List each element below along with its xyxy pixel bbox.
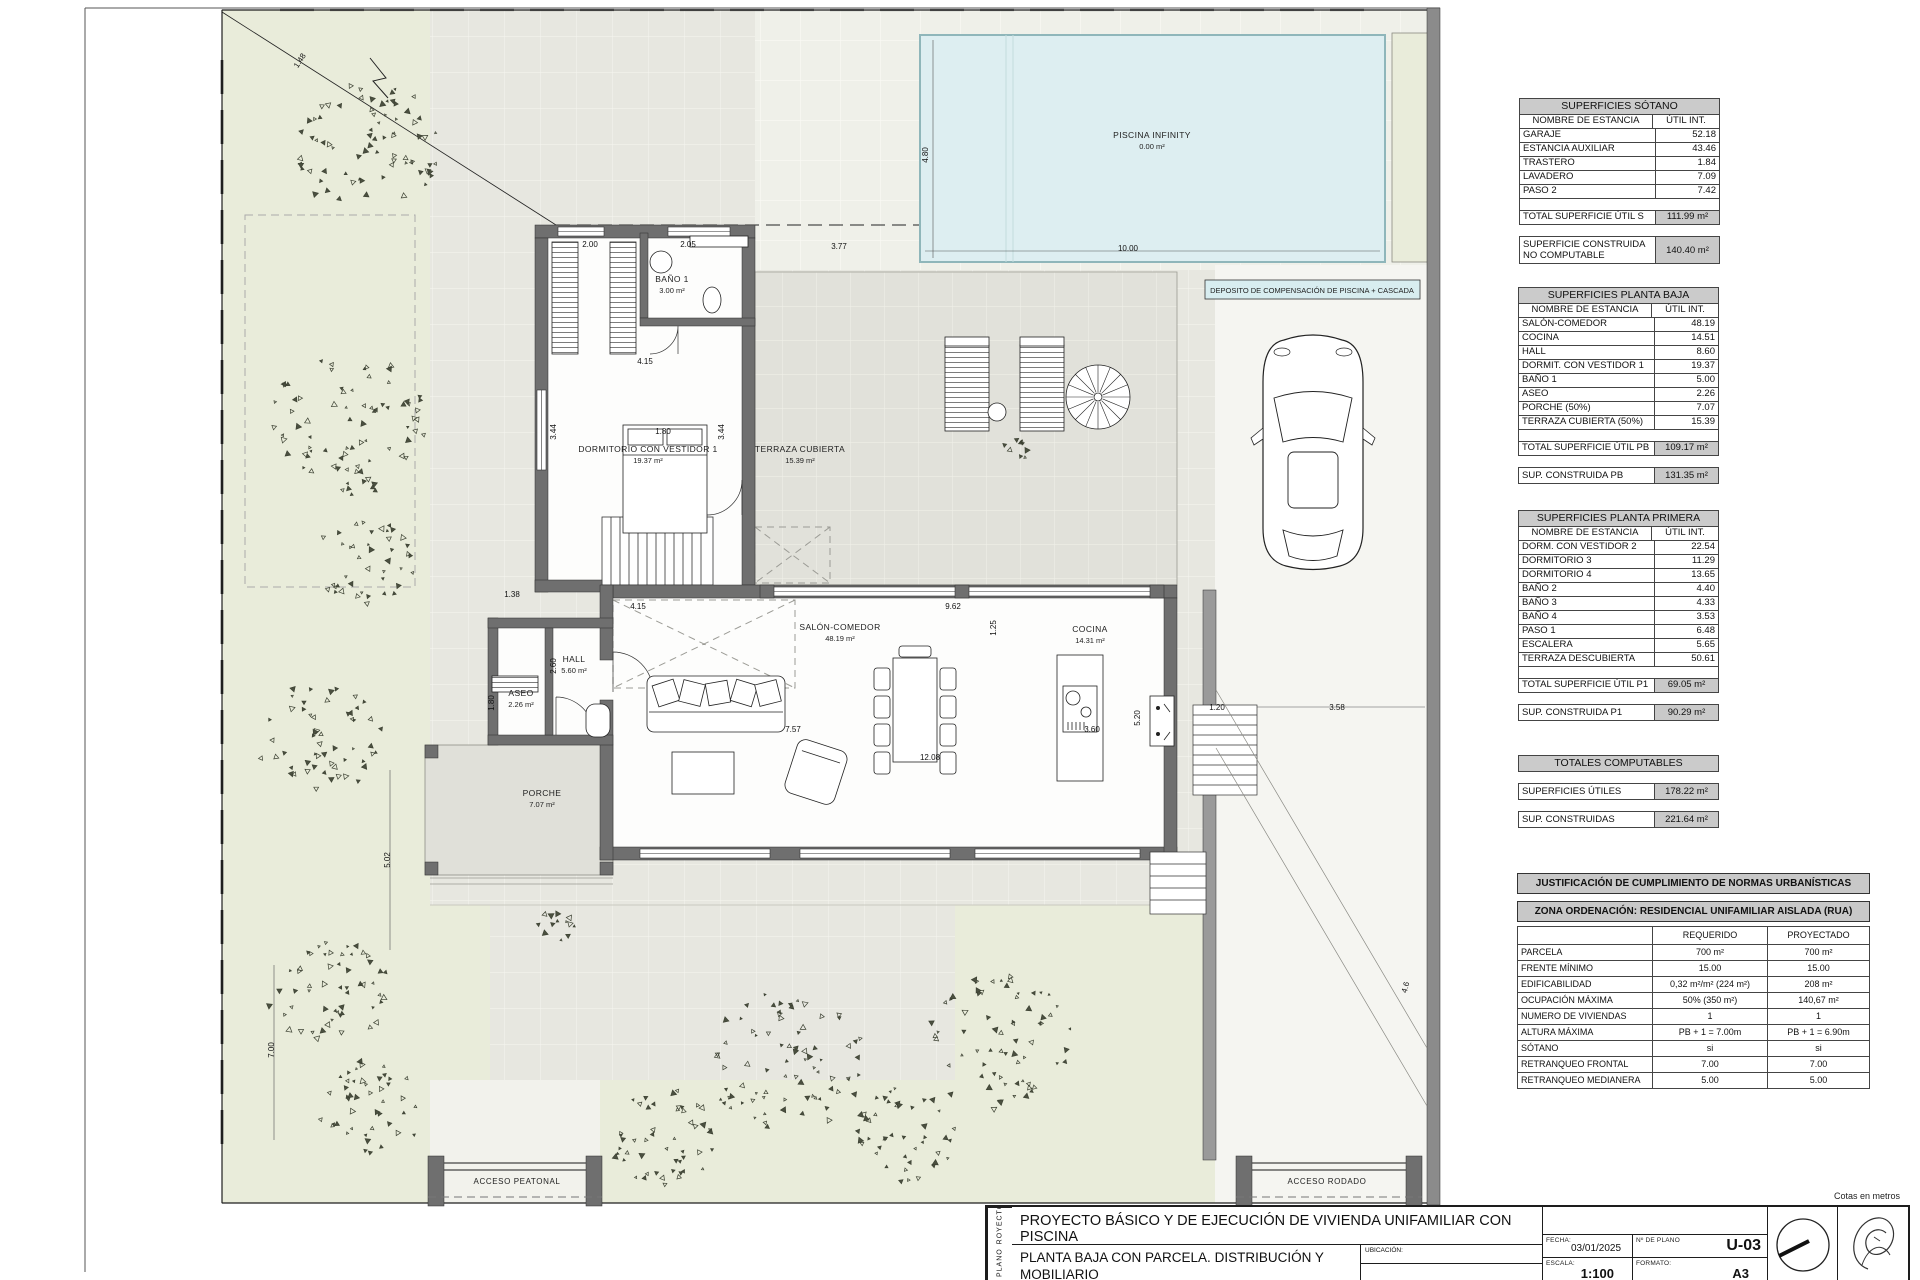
formato-label: FORMATO: — [1636, 1260, 1671, 1267]
svg-text:0.00 m²: 0.00 m² — [1139, 142, 1165, 151]
svg-text:ASEO: ASEO — [508, 688, 533, 698]
fecha-cell: FECHA: 03/01/2025 — [1542, 1235, 1632, 1258]
dimension-label: 3.58 — [1329, 703, 1345, 712]
plan-number-value: U-03 — [1726, 1237, 1761, 1255]
svg-text:14.31 m²: 14.31 m² — [1075, 636, 1105, 645]
signature-icon — [1838, 1207, 1908, 1280]
pool-tank-label: DEPOSITO DE COMPENSACIÓN DE PISCINA + CA… — [1210, 286, 1414, 295]
svg-text:COCINA: COCINA — [1072, 624, 1107, 634]
spiral-staircase — [1066, 365, 1130, 429]
svg-text:7.07 m²: 7.07 m² — [529, 800, 555, 809]
ubicacion-label: UBICACIÓN: — [1365, 1247, 1403, 1254]
formato-value: A3 — [1732, 1266, 1749, 1280]
empty-cell — [1542, 1207, 1767, 1235]
dimension-label: 2.05 — [680, 240, 696, 249]
plan-number-cell: Nº DE PLANO U-03 — [1632, 1235, 1767, 1258]
wardrobe — [552, 242, 578, 354]
wardrobe — [610, 242, 636, 354]
svg-text:SALÓN-COMEDOR: SALÓN-COMEDOR — [799, 622, 880, 632]
dimension-label: 3.44 — [549, 424, 558, 440]
coffee-table — [672, 752, 734, 794]
svg-text:TERRAZA CUBIERTA: TERRAZA CUBIERTA — [755, 444, 845, 454]
dimension-label: 4.15 — [630, 602, 646, 611]
dimension-label: 9.62 — [945, 602, 961, 611]
kitchen-wall-unit — [1150, 696, 1174, 746]
dimension-label: 7.00 — [267, 1042, 276, 1058]
dimension-label: 4.80 — [921, 147, 930, 163]
dimension-label: 1.38 — [504, 590, 520, 599]
dimension-label: 5.02 — [383, 852, 392, 868]
svg-text:19.37 m²: 19.37 m² — [633, 456, 663, 465]
car-top-view — [1251, 335, 1375, 570]
dimension-label: 7.57 — [785, 725, 801, 734]
plano-tag: PLANO — [987, 1245, 1012, 1280]
project-title: PROYECTO BÁSICO Y DE EJECUCIÓN DE VIVIEN… — [1012, 1207, 1542, 1245]
dimension-label: 12.08 — [920, 753, 941, 762]
pool-tank: DEPOSITO DE COMPENSACIÓN DE PISCINA + CA… — [1205, 280, 1420, 299]
signature-cell — [1837, 1207, 1908, 1280]
escala-value: 1:100 — [1581, 1266, 1614, 1280]
fecha-label: FECHA: — [1546, 1237, 1571, 1244]
escala-cell: ESCALA: 1:100 — [1542, 1258, 1632, 1280]
ubicacion-cell: UBICACIÓN: — [1360, 1245, 1542, 1280]
svg-text:DORMITORIO CON VESTIDOR 1: DORMITORIO CON VESTIDOR 1 — [578, 444, 717, 454]
drawing-sheet: DEPOSITO DE COMPENSACIÓN DE PISCINA + CA… — [0, 0, 1920, 1280]
plan-note: ACCESO PEATONAL — [474, 1177, 561, 1186]
svg-text:PISCINA INFINITY: PISCINA INFINITY — [1113, 130, 1191, 140]
dimension-label: 3.60 — [1084, 725, 1100, 734]
dimension-label: 1.20 — [1209, 703, 1225, 712]
bed — [623, 425, 707, 533]
dimension-label: 2.60 — [549, 658, 558, 674]
dimension-label: 5.20 — [1133, 710, 1142, 726]
dimension-label: 10.00 — [1118, 244, 1139, 253]
dimension-label: 3.77 — [831, 242, 847, 251]
dimension-label: 1.25 — [989, 620, 998, 636]
dimension-label: 2.00 — [582, 240, 598, 249]
dimension-label: 1.80 — [487, 695, 496, 711]
svg-text:PORCHE: PORCHE — [523, 788, 562, 798]
north-arrow-cell — [1767, 1207, 1837, 1280]
side-table — [988, 403, 1006, 421]
dimension-label: 4.15 — [637, 357, 653, 366]
north-arrow-icon — [1768, 1207, 1837, 1280]
proyecto-tag: PROYECTO — [987, 1207, 1012, 1245]
dimension-label: 1.80 — [655, 427, 671, 436]
escala-label: ESCALA: — [1546, 1260, 1575, 1267]
sheet-title: PLANTA BAJA CON PARCELA. DISTRIBUCIÓN Y … — [1012, 1245, 1360, 1280]
svg-text:HALL: HALL — [563, 654, 586, 664]
formato-cell: FORMATO: A3 — [1632, 1258, 1767, 1280]
plan-number-label: Nº DE PLANO — [1636, 1237, 1680, 1244]
svg-text:3.00 m²: 3.00 m² — [659, 286, 685, 295]
svg-text:5.60 m²: 5.60 m² — [561, 666, 587, 675]
plan-note: ACCESO RODADO — [1288, 1177, 1367, 1186]
ubicacion-divider — [1361, 1263, 1542, 1280]
kitchen-island — [1057, 655, 1103, 781]
svg-text:48.19 m²: 48.19 m² — [825, 634, 855, 643]
units-note: Cotas en metros — [1730, 1191, 1900, 1201]
porch-slab — [425, 745, 613, 875]
svg-text:15.39 m²: 15.39 m² — [785, 456, 815, 465]
svg-text:BAÑO 1: BAÑO 1 — [655, 274, 689, 284]
fecha-value: 03/01/2025 — [1571, 1243, 1621, 1254]
floor-plan-drawing: DEPOSITO DE COMPENSACIÓN DE PISCINA + CA… — [0, 0, 1920, 1280]
title-block: PROYECTO PROYECTO BÁSICO Y DE EJECUCIÓN … — [985, 1205, 1910, 1280]
dimension-label: 3.44 — [717, 424, 726, 440]
svg-text:2.26 m²: 2.26 m² — [508, 700, 534, 709]
sofa — [647, 676, 785, 732]
